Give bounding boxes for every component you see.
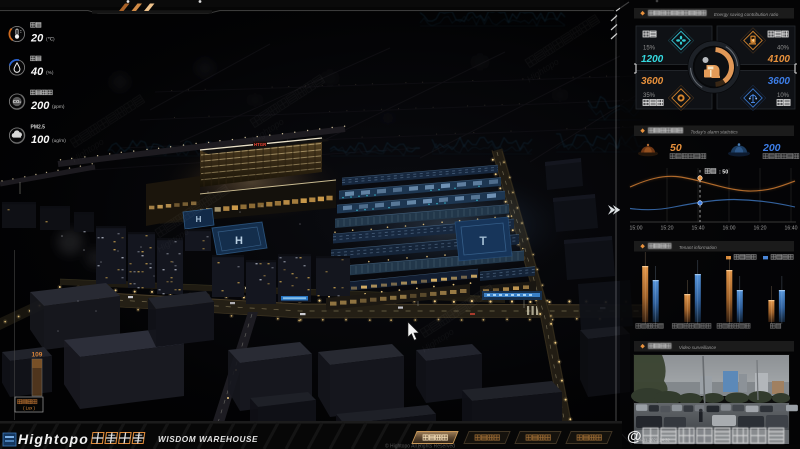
svg-text:35%: 35% xyxy=(643,93,656,99)
svg-text:15:40: 15:40 xyxy=(692,226,705,232)
svg-text:15%: 15% xyxy=(643,46,656,52)
svg-text:(ppm): (ppm) xyxy=(52,104,65,110)
svg-text:200: 200 xyxy=(762,142,781,154)
svg-text:15:00: 15:00 xyxy=(630,226,643,232)
svg-text:Today's alarm statistics: Today's alarm statistics xyxy=(691,129,739,134)
svg-text:3600: 3600 xyxy=(768,76,791,87)
svg-text:16:00: 16:00 xyxy=(723,226,736,232)
svg-text:40%: 40% xyxy=(777,46,790,52)
svg-text:200: 200 xyxy=(30,100,50,112)
svg-text:Hightopo: Hightopo xyxy=(18,431,89,447)
svg-text:3600: 3600 xyxy=(641,76,664,87)
svg-text:H: H xyxy=(235,235,243,247)
svg-text:100: 100 xyxy=(31,134,50,146)
svg-text:16:40: 16:40 xyxy=(785,226,798,232)
svg-text:16:20: 16:20 xyxy=(754,226,767,232)
svg-text:H: H xyxy=(196,215,202,224)
svg-text:( Lux ): ( Lux ) xyxy=(23,406,35,411)
svg-text:CO₂: CO₂ xyxy=(13,99,21,104)
svg-text:1200: 1200 xyxy=(641,54,664,65)
svg-text:(ug/m): (ug/m) xyxy=(52,138,66,144)
svg-text:(℃): (℃) xyxy=(46,37,55,43)
svg-text:WISDOM WAREHOUSE: WISDOM WAREHOUSE xyxy=(158,435,258,444)
svg-text:: 50: : 50 xyxy=(719,170,728,176)
svg-text:40: 40 xyxy=(30,66,44,78)
svg-text:Energy saving contribution rat: Energy saving contribution ratio xyxy=(714,12,779,17)
svg-text:50: 50 xyxy=(670,142,682,154)
svg-text:20: 20 xyxy=(30,33,44,45)
svg-text:(%): (%) xyxy=(46,70,54,76)
svg-text:@: @ xyxy=(627,428,642,445)
svg-text:15:20: 15:20 xyxy=(661,226,674,232)
svg-text:4100: 4100 xyxy=(767,54,791,65)
svg-text:T: T xyxy=(479,234,487,248)
svg-text:PM2.5: PM2.5 xyxy=(31,125,46,131)
svg-text:109: 109 xyxy=(32,352,43,359)
svg-text:Video surveillance: Video surveillance xyxy=(679,345,717,350)
svg-text:10%: 10% xyxy=(777,93,790,99)
svg-text:Tenant information: Tenant information xyxy=(679,245,717,250)
